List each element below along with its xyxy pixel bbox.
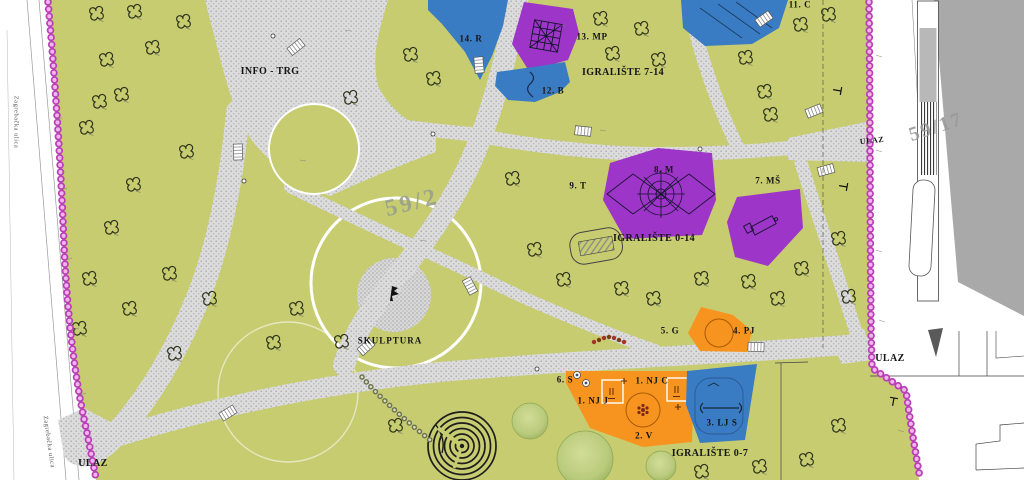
label-item-2-V: 2. V <box>635 432 653 441</box>
label-igraliste-0-7: IGRALIŠTE 0-7 <box>672 449 749 459</box>
labyrinth <box>428 412 496 480</box>
label-skulptura: SKULPTURA <box>358 337 423 346</box>
label-item-8-M: 8. M <box>654 166 674 175</box>
label-item-7-MS: 7. MŠ <box>755 177 781 186</box>
label-item-11-C: 11. C <box>789 1 812 10</box>
label-igraliste-0-14: IGRALIŠTE 0-14 <box>613 234 695 244</box>
label-item-6-S: 6. S <box>557 376 573 385</box>
site-plan-drawing <box>0 0 1024 480</box>
label-item-4-PJ: 4. PJ <box>733 327 755 336</box>
label-item-1-NJ-J: 1. NJ J <box>578 397 609 406</box>
label-info-trg: INFO - TRG <box>241 67 300 77</box>
label-ulaz-bottom-right: ULAZ <box>875 354 904 364</box>
label-igraliste-7-14: IGRALIŠTE 7-14 <box>582 68 664 78</box>
label-street-upper: Zagrebačka ulica <box>12 96 19 149</box>
zone-8-M <box>603 148 716 239</box>
label-item-12-B: 12. B <box>542 87 565 96</box>
label-item-9-T: 9. T <box>569 182 586 191</box>
label-item-5-G: 5. G <box>661 327 679 336</box>
label-ulaz-bottom-left: ULAZ <box>78 459 107 469</box>
label-item-13-MP: 13. MP <box>576 33 607 42</box>
label-item-3-LJ-S: 3. LJ S <box>707 419 738 428</box>
label-item-1-NJ-C: 1. NJ C <box>636 377 669 386</box>
zone-3-LJS <box>686 364 757 443</box>
label-item-14-R: 14. R <box>460 35 483 44</box>
park-site-plan: INFO - TRG 14. R 13. MP IGRALIŠTE 7-14 1… <box>0 0 1024 480</box>
